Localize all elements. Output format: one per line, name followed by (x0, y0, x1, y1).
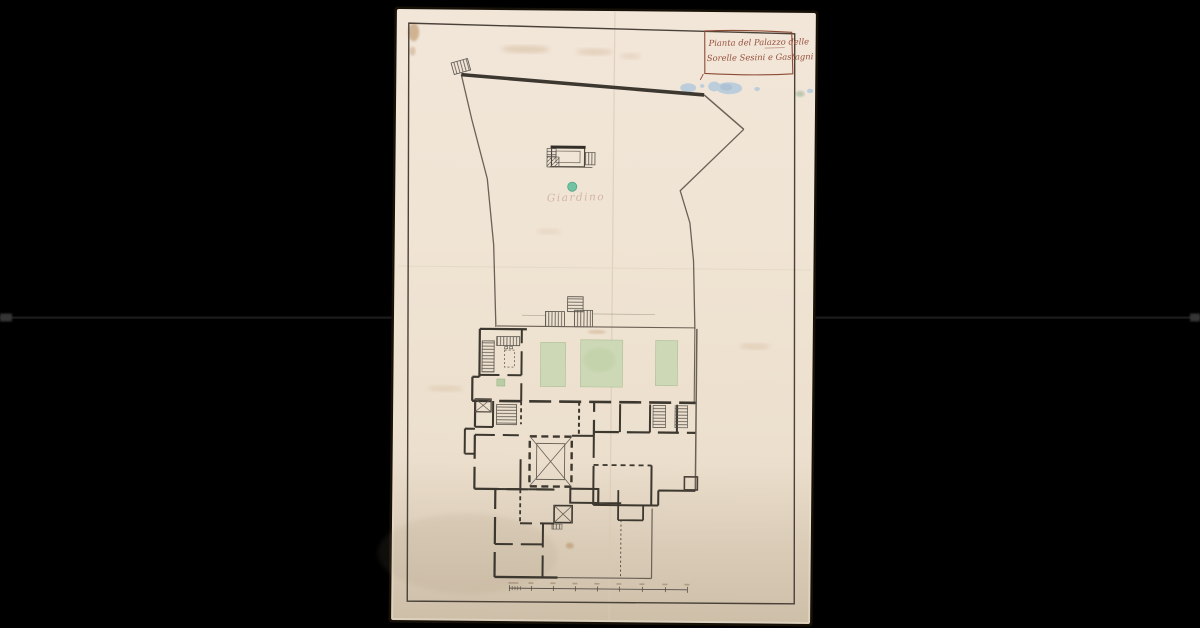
seam-glow-left (0, 314, 12, 322)
paper-sheet: Pianta del Palazzo delle Sorelle Sesini … (377, 6, 818, 626)
south-wall (494, 577, 557, 578)
parterre-right (655, 341, 677, 386)
archive-scan-stage: Pianta del Palazzo delle Sorelle Sesini … (0, 0, 1200, 628)
service-stair-icon (653, 405, 666, 427)
casino-stairs-right-icon (585, 152, 595, 165)
garden-label: Giardino (547, 191, 605, 204)
cartouche-text-line2: Sorelle Sesini e Gastagni (707, 51, 814, 63)
parterre-small (540, 342, 565, 386)
small-green-court (497, 379, 505, 386)
scan-seam-left (0, 317, 394, 319)
plan-scan-svg: Pianta del Palazzo delle Sorelle Sesini … (0, 0, 1200, 628)
casino-stairs-left-icon (547, 148, 556, 156)
small-stair-icon (552, 524, 562, 529)
casino-ramp-icon (547, 157, 559, 167)
main-stair-icon (496, 404, 516, 424)
seam-glow-right (1190, 314, 1200, 322)
scan-seam-right (812, 317, 1200, 319)
stair-flight-icon (497, 336, 520, 345)
stair-flight-icon (482, 341, 494, 372)
fountain-dot (568, 182, 577, 191)
service-stair-icon (675, 406, 688, 428)
cartouche-text-line1: Pianta del Palazzo delle (707, 36, 809, 48)
